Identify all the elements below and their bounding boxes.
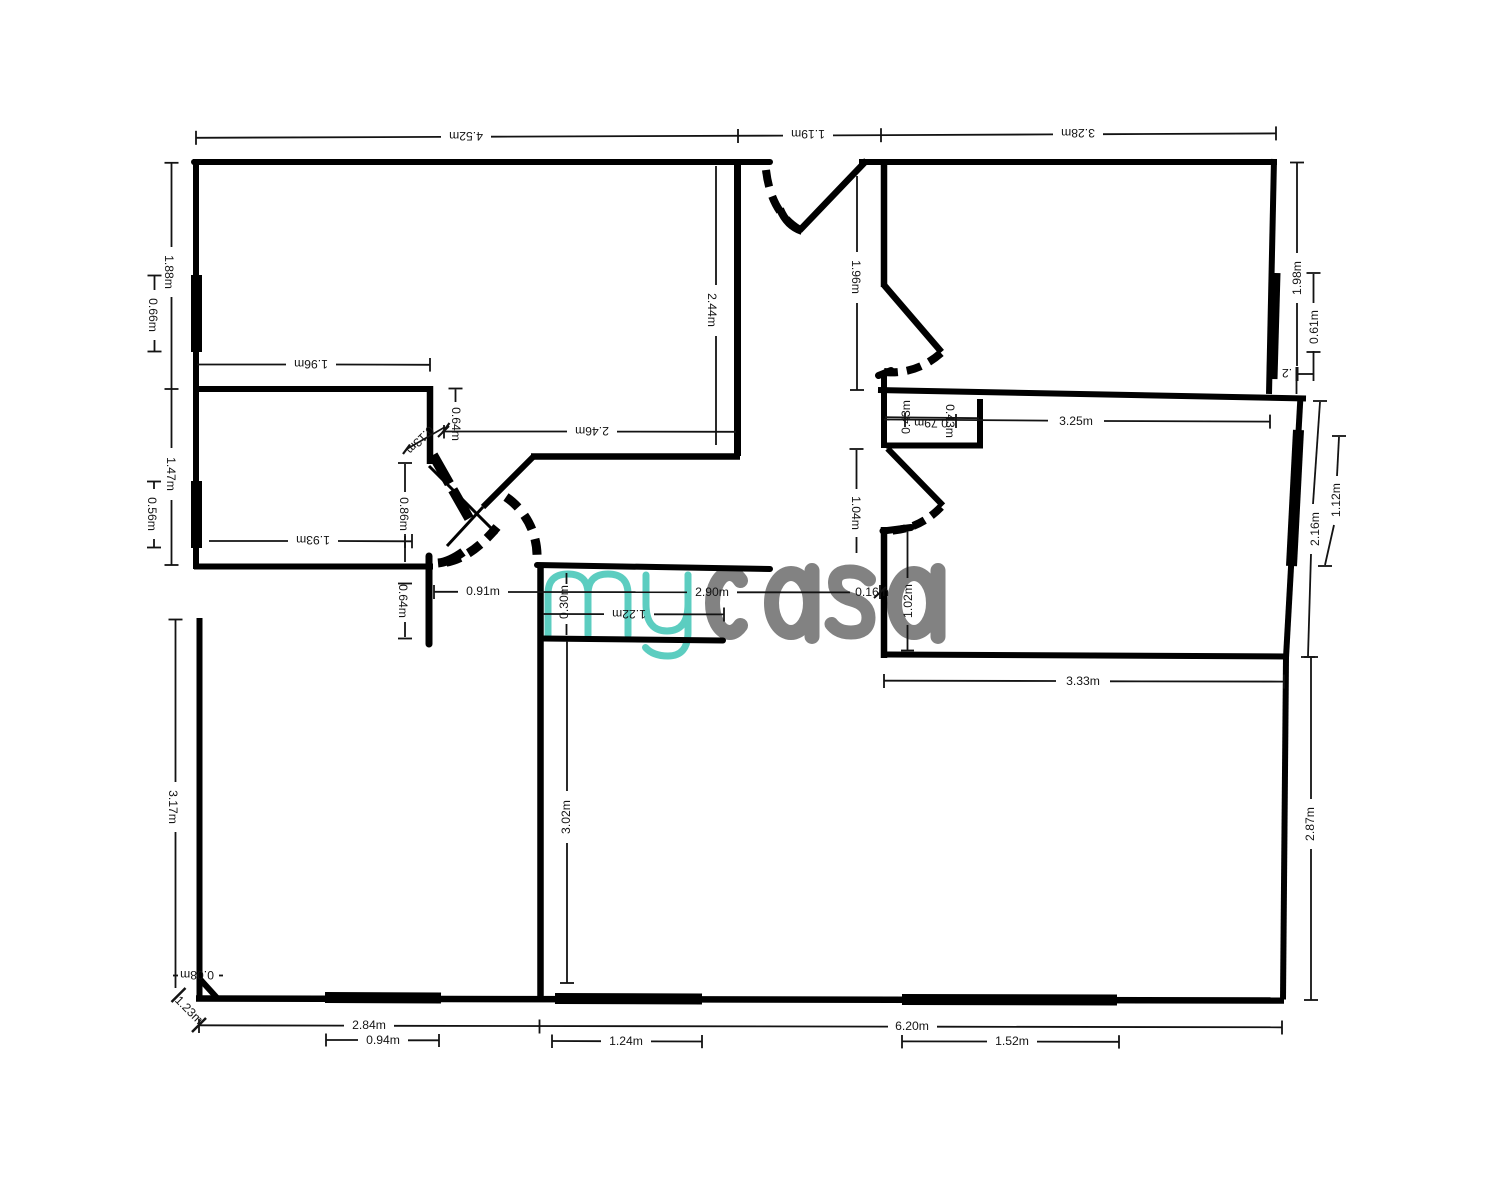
svg-text:2.90m: 2.90m (695, 585, 729, 599)
svg-text:0.94m: 0.94m (366, 1033, 400, 1047)
svg-text:1.96m: 1.96m (294, 357, 328, 371)
svg-text:2.46m: 2.46m (575, 424, 609, 438)
svg-text:0.16m: 0.16m (855, 585, 889, 599)
svg-text:0.61m: 0.61m (1307, 310, 1321, 344)
svg-text:0.56m: 0.56m (145, 497, 159, 531)
svg-text:1.24m: 1.24m (609, 1034, 643, 1048)
svg-text:0.30m: 0.30m (557, 585, 571, 619)
svg-text:1.02m: 1.02m (901, 584, 915, 618)
svg-text:2.84m: 2.84m (352, 1018, 386, 1032)
svg-text:1.93m: 1.93m (296, 533, 330, 547)
svg-text:3.02m: 3.02m (559, 800, 573, 834)
svg-text:1.98m: 1.98m (1290, 261, 1304, 295)
svg-text:1.88m: 1.88m (162, 255, 176, 289)
svg-text:1.04m: 1.04m (849, 496, 863, 530)
svg-text:1.22m: 1.22m (612, 607, 646, 621)
svg-text:3.28m: 3.28m (1061, 126, 1095, 140)
svg-text:1.19m: 1.19m (791, 127, 825, 141)
svg-text:.2: .2 (1282, 366, 1292, 380)
svg-text:1.96m: 1.96m (849, 260, 863, 294)
svg-text:3.25m: 3.25m (1059, 414, 1093, 428)
svg-text:1.47m: 1.47m (164, 457, 178, 491)
svg-text:3.33m: 3.33m (1066, 674, 1100, 688)
svg-text:0.43m: 0.43m (899, 400, 913, 434)
svg-text:2.16m: 2.16m (1308, 512, 1322, 546)
svg-text:0.66m: 0.66m (146, 298, 160, 332)
svg-text:6.20m: 6.20m (895, 1019, 929, 1033)
svg-text:3.17m: 3.17m (166, 790, 180, 824)
svg-text:1.52m: 1.52m (995, 1034, 1029, 1048)
svg-text:2.87m: 2.87m (1303, 807, 1317, 841)
svg-text:4.52m: 4.52m (449, 129, 483, 143)
svg-text:0.43m: 0.43m (943, 404, 957, 438)
svg-text:0.64m: 0.64m (396, 584, 410, 618)
svg-text:0.64m: 0.64m (449, 407, 463, 441)
svg-text:2.44m: 2.44m (705, 293, 719, 327)
svg-text:0.79m: 0.79m (914, 416, 948, 430)
svg-text:0.91m: 0.91m (466, 584, 500, 598)
svg-text:0.86m: 0.86m (397, 497, 411, 531)
svg-text:0.08m: 0.08m (180, 968, 214, 982)
svg-text:1.12m: 1.12m (1329, 483, 1343, 517)
